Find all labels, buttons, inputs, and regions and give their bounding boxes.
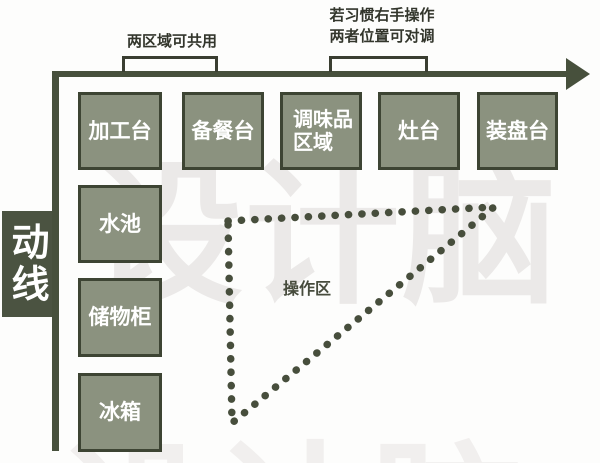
station-label-line2: 区域 xyxy=(293,130,333,154)
station-plating-table: 装盘台 xyxy=(477,92,558,170)
station-label: 备餐台 xyxy=(192,119,255,143)
flow-arrowhead-icon xyxy=(566,58,590,90)
station-fridge: 冰箱 xyxy=(78,373,162,452)
kitchen-flow-diagram: 设计脑 设计脑 动线 两区域可共用 若习惯右手操作 两者位置可对调 加工台 备餐… xyxy=(0,0,600,463)
station-prep-table: 备餐台 xyxy=(182,92,264,170)
shared-zone-note: 两区域可共用 xyxy=(108,31,236,52)
station-label: 装盘台 xyxy=(486,119,549,143)
flow-label: 动线 xyxy=(8,222,46,306)
station-seasoning-area: 调味品 区域 xyxy=(280,92,362,170)
station-storage-cabinet: 储物柜 xyxy=(78,278,162,357)
station-stove: 灶台 xyxy=(378,92,460,170)
station-label: 水池 xyxy=(99,212,141,236)
station-label: 加工台 xyxy=(89,119,152,143)
shared-zone-bracket xyxy=(122,56,218,72)
station-label: 储物柜 xyxy=(89,305,152,329)
station-label: 灶台 xyxy=(398,119,440,143)
station-processing-table: 加工台 xyxy=(78,92,162,170)
work-zone-label: 操作区 xyxy=(283,275,331,299)
swap-zone-note-line1: 若习惯右手操作 xyxy=(312,5,452,26)
station-sink: 水池 xyxy=(78,185,162,263)
station-label: 冰箱 xyxy=(99,400,141,424)
station-label-line1: 调味品 xyxy=(293,107,353,131)
swap-zone-note-line2: 两者位置可对调 xyxy=(312,26,452,47)
flow-line-vertical xyxy=(52,71,59,451)
swap-zone-note: 若习惯右手操作 两者位置可对调 xyxy=(312,5,452,47)
swap-zone-bracket xyxy=(329,56,428,72)
flow-label-block: 动线 xyxy=(2,211,52,317)
station-label: 调味品 区域 xyxy=(291,108,353,154)
